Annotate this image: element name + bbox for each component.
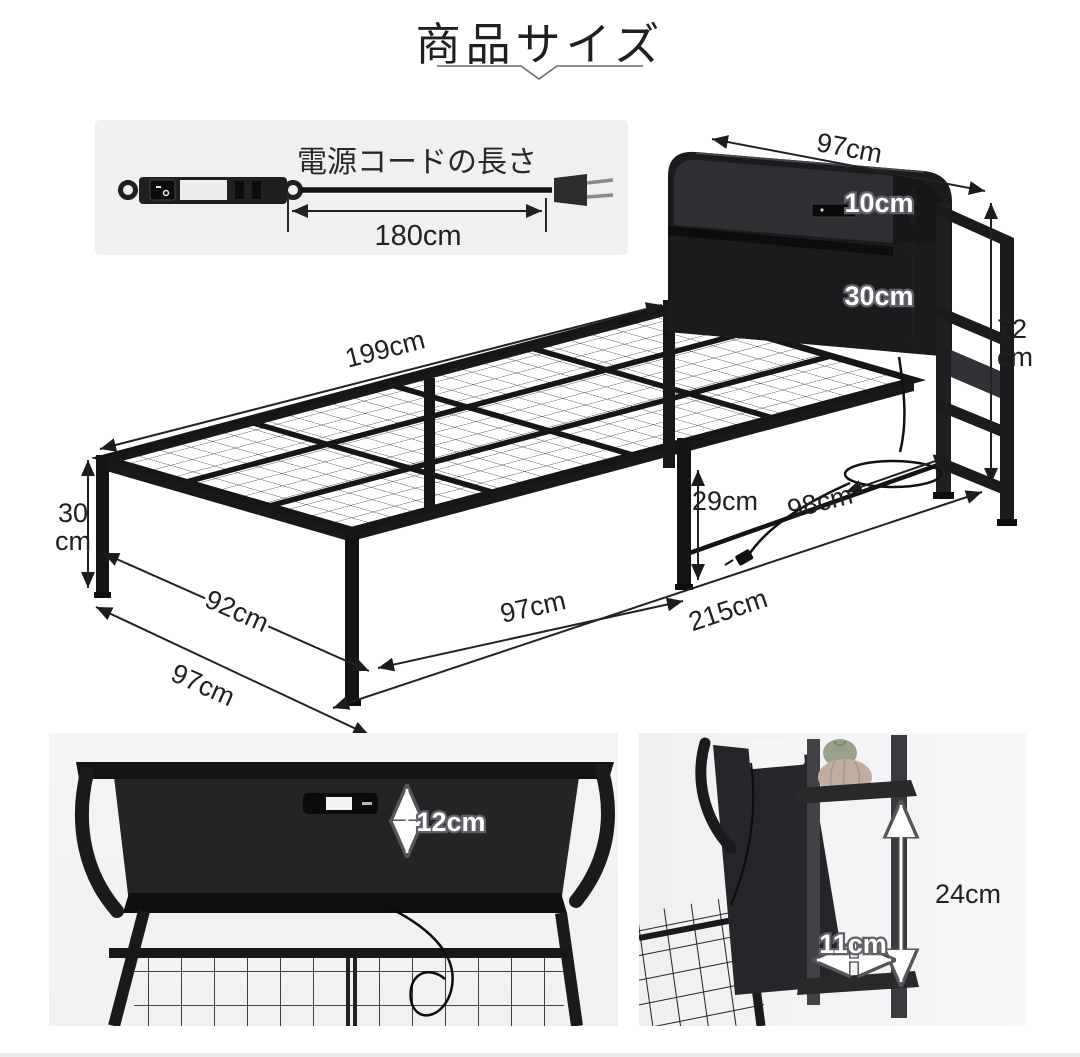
dim-headboard-shelf-height: 10cm <box>844 188 913 218</box>
dim-leg-height-value: 30 <box>58 498 88 528</box>
dim-inner-width: 92cm <box>201 584 274 638</box>
dim-headboard-width: 97cm <box>814 127 884 169</box>
headboard-top-edge <box>76 762 614 779</box>
headboard-side-column <box>936 203 951 495</box>
headboard-side-photo: 24cm 11cm <box>639 733 1026 1026</box>
headboard-side-column <box>1000 238 1014 522</box>
dim-under-bed-depth: 98cm <box>784 479 855 524</box>
curved-side-arm <box>576 771 608 901</box>
bed-leg <box>96 455 109 595</box>
headboard-front-photo: 12cm <box>49 733 618 1026</box>
dim-total-length: 215cm <box>685 583 771 637</box>
dim-total-height-value: 72 <box>997 314 1027 344</box>
curved-side-arm <box>82 773 117 911</box>
dim-shelf-depth: 12cm <box>416 807 485 837</box>
dim-under-bed-clearance: 29cm <box>692 486 758 516</box>
bed-leg <box>677 438 691 588</box>
dim-front-leg-spacing: 97cm <box>498 585 569 628</box>
dim-total-height-unit: cm <box>997 342 1033 372</box>
headboard-side-column <box>807 739 820 1005</box>
side-shelf-dimensions: 24cm 11cm <box>817 805 1001 982</box>
frame-rail <box>109 948 569 958</box>
bed-leg <box>345 528 359 704</box>
headboard-front-illustration <box>76 762 614 1026</box>
dim-outer-width: 97cm <box>167 658 240 712</box>
dim-leg-height-unit: cm <box>55 526 91 556</box>
dim-side-shelf-depth: 11cm <box>819 929 887 959</box>
bed-dimension-diagram: 97cm 10cm 30cm 72 cm 199cm 30 cm 92cm 97… <box>0 0 1080 733</box>
dim-platform-length: 199cm <box>342 324 428 373</box>
dim-headboard-panel-height: 30cm <box>844 281 913 311</box>
dim-side-shelf-height: 24cm <box>935 879 1001 909</box>
headboard-side-illustration <box>639 735 919 1026</box>
device-on-shelf <box>748 737 805 770</box>
next-section-divider <box>0 1053 1080 1057</box>
